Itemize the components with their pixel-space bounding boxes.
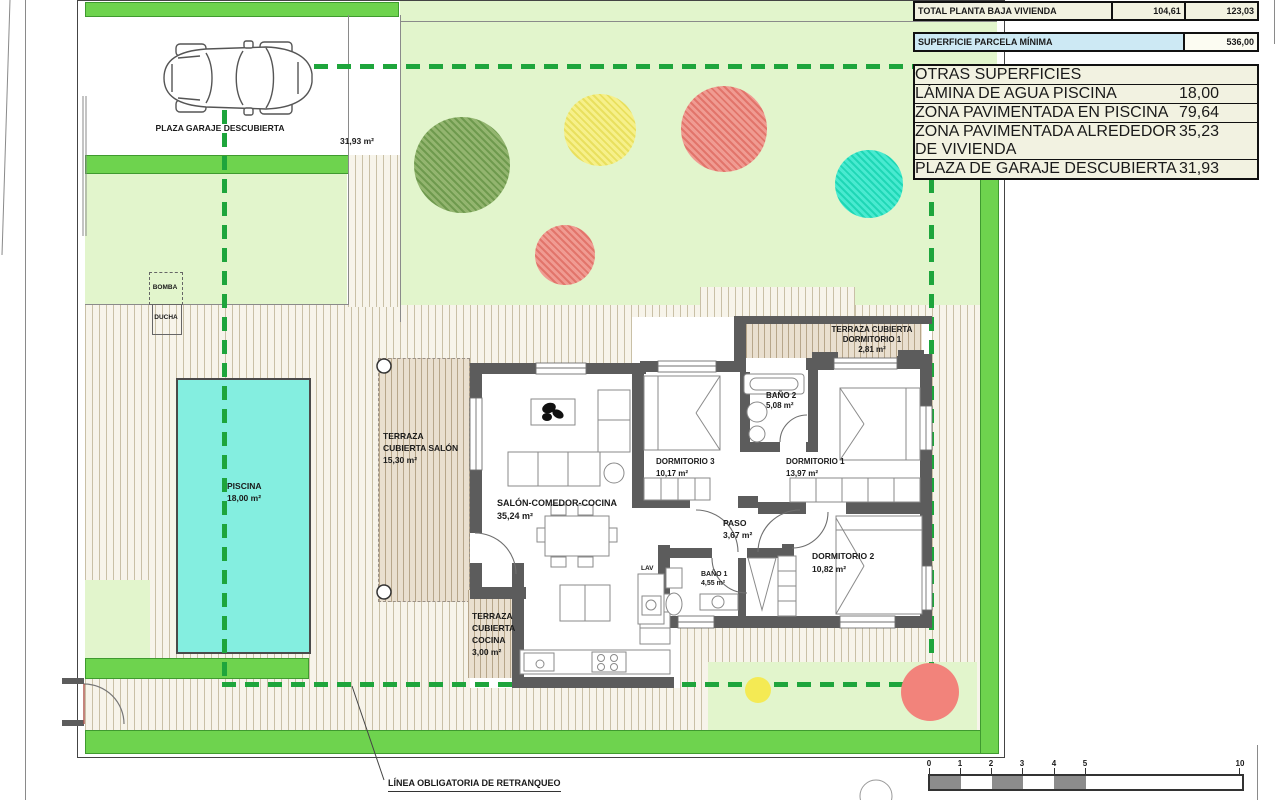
salon-area: 35,24 m² [497, 511, 533, 522]
lav-label: LAV [641, 565, 654, 573]
tree-yellow [564, 94, 636, 166]
terrace-dorm1-label-1: TERRAZA CUBIERTA [818, 325, 926, 334]
scale-tick-label: 1 [958, 759, 962, 768]
table-total-value1: 104,61 [1111, 3, 1184, 19]
gate [62, 678, 124, 726]
terrace-cocina-label-3: COCINA [472, 635, 506, 646]
paso-area: 3,67 m² [723, 530, 752, 541]
tree-red-small [535, 225, 595, 285]
paso-label: PASO [723, 518, 746, 529]
pool-label: PISCINA [227, 481, 261, 492]
bano1-label: BAÑO 1 [701, 570, 727, 579]
road-diagonal-line [2, 0, 10, 255]
bano2-area: 5,08 m² [766, 401, 794, 410]
table-otras-header: OTRAS SUPERFICIES [915, 66, 1179, 84]
scale-bar-ruler [928, 774, 1244, 791]
scale-tick-label: 2 [989, 759, 993, 768]
scale-tick-label: 5 [1083, 759, 1087, 768]
terrace-dorm1-label-2: DORMITORIO 1 [818, 335, 926, 344]
left-wall-lines [83, 96, 86, 236]
terrace-columns [377, 359, 391, 599]
table-row: ZONA PAVIMENTADA ALREDEDOR DE VIVIENDA 3… [915, 122, 1257, 159]
dorm3-label: DORMITORIO 3 [656, 456, 715, 467]
tree-red-large [681, 86, 767, 172]
table-parcela: SUPERFICIE PARCELA MÍNIMA 536,00 [913, 32, 1259, 52]
pump-label: BOMBA [149, 284, 181, 292]
dorm2-label: DORMITORIO 2 [812, 551, 874, 562]
dorm1-label: DORMITORIO 1 [786, 456, 845, 467]
scale-tick-label: 3 [1020, 759, 1024, 768]
setback-annotation: LÍNEA OBLIGATORIA DE RETRANQUEO [388, 778, 561, 792]
table-parcela-value: 536,00 [1183, 34, 1257, 50]
table-row: LÁMINA DE AGUA PISCINA 18,00 [915, 84, 1257, 103]
shrub-yellow [745, 677, 771, 703]
furniture [508, 374, 922, 674]
bano1-area: 4,55 m² [701, 579, 725, 588]
table-parcela-label: SUPERFICIE PARCELA MÍNIMA [915, 34, 1183, 50]
garage-label: PLAZA GARAJE DESCUBIERTA [140, 123, 300, 134]
table-total-value2: 123,03 [1184, 3, 1257, 19]
terrace-cocina-label-1: TERRAZA [472, 611, 513, 622]
table-total-label: TOTAL PLANTA BAJA VIVIENDA [915, 3, 1111, 19]
terrace-cocina-label-2: CUBIERTA [472, 623, 515, 634]
table-total: TOTAL PLANTA BAJA VIVIENDA 104,61 123,03 [913, 1, 1259, 21]
scale-tick-label: 10 [1236, 759, 1245, 768]
leader-line [352, 686, 384, 780]
table-otras: OTRAS SUPERFICIES LÁMINA DE AGUA PISCINA… [913, 64, 1259, 180]
dorm3-area: 10,17 m² [656, 468, 688, 479]
tree-teal [835, 150, 903, 218]
terrace-salon-area-label: 15,30 m² [383, 455, 417, 466]
bano2-label: BAÑO 2 [766, 391, 796, 400]
shower-label: DUCHA [151, 314, 181, 322]
salon-label: SALÓN-COMEDOR-COCINA [497, 498, 617, 509]
site-plan: PLAZA GARAJE DESCUBIERTA 31,93 m² BOMBA … [0, 0, 1280, 800]
shrub-red [901, 663, 959, 721]
scale-tick-label: 0 [927, 759, 931, 768]
dorm2-area: 10,82 m² [812, 564, 846, 575]
terrace-cocina-area-label: 3,00 m² [472, 647, 501, 658]
terrace-salon-label-1: TERRAZA [383, 431, 424, 442]
garage-area: 31,93 m² [300, 136, 374, 147]
pool-area: 18,00 m² [227, 493, 261, 504]
terrace-salon-label-2: CUBIERTA SALÓN [383, 443, 458, 454]
terrace-dorm1-area-label: 2,81 m² [818, 345, 926, 354]
tree-outline [860, 780, 892, 800]
table-row: ZONA PAVIMENTADA EN PISCINA 79,64 [915, 103, 1257, 122]
table-row: PLAZA DE GARAJE DESCUBIERTA 31,93 [915, 159, 1257, 178]
tree-green [414, 117, 510, 213]
dorm1-area: 13,97 m² [786, 468, 818, 479]
car-icon [164, 41, 312, 115]
scale-tick-label: 4 [1052, 759, 1056, 768]
